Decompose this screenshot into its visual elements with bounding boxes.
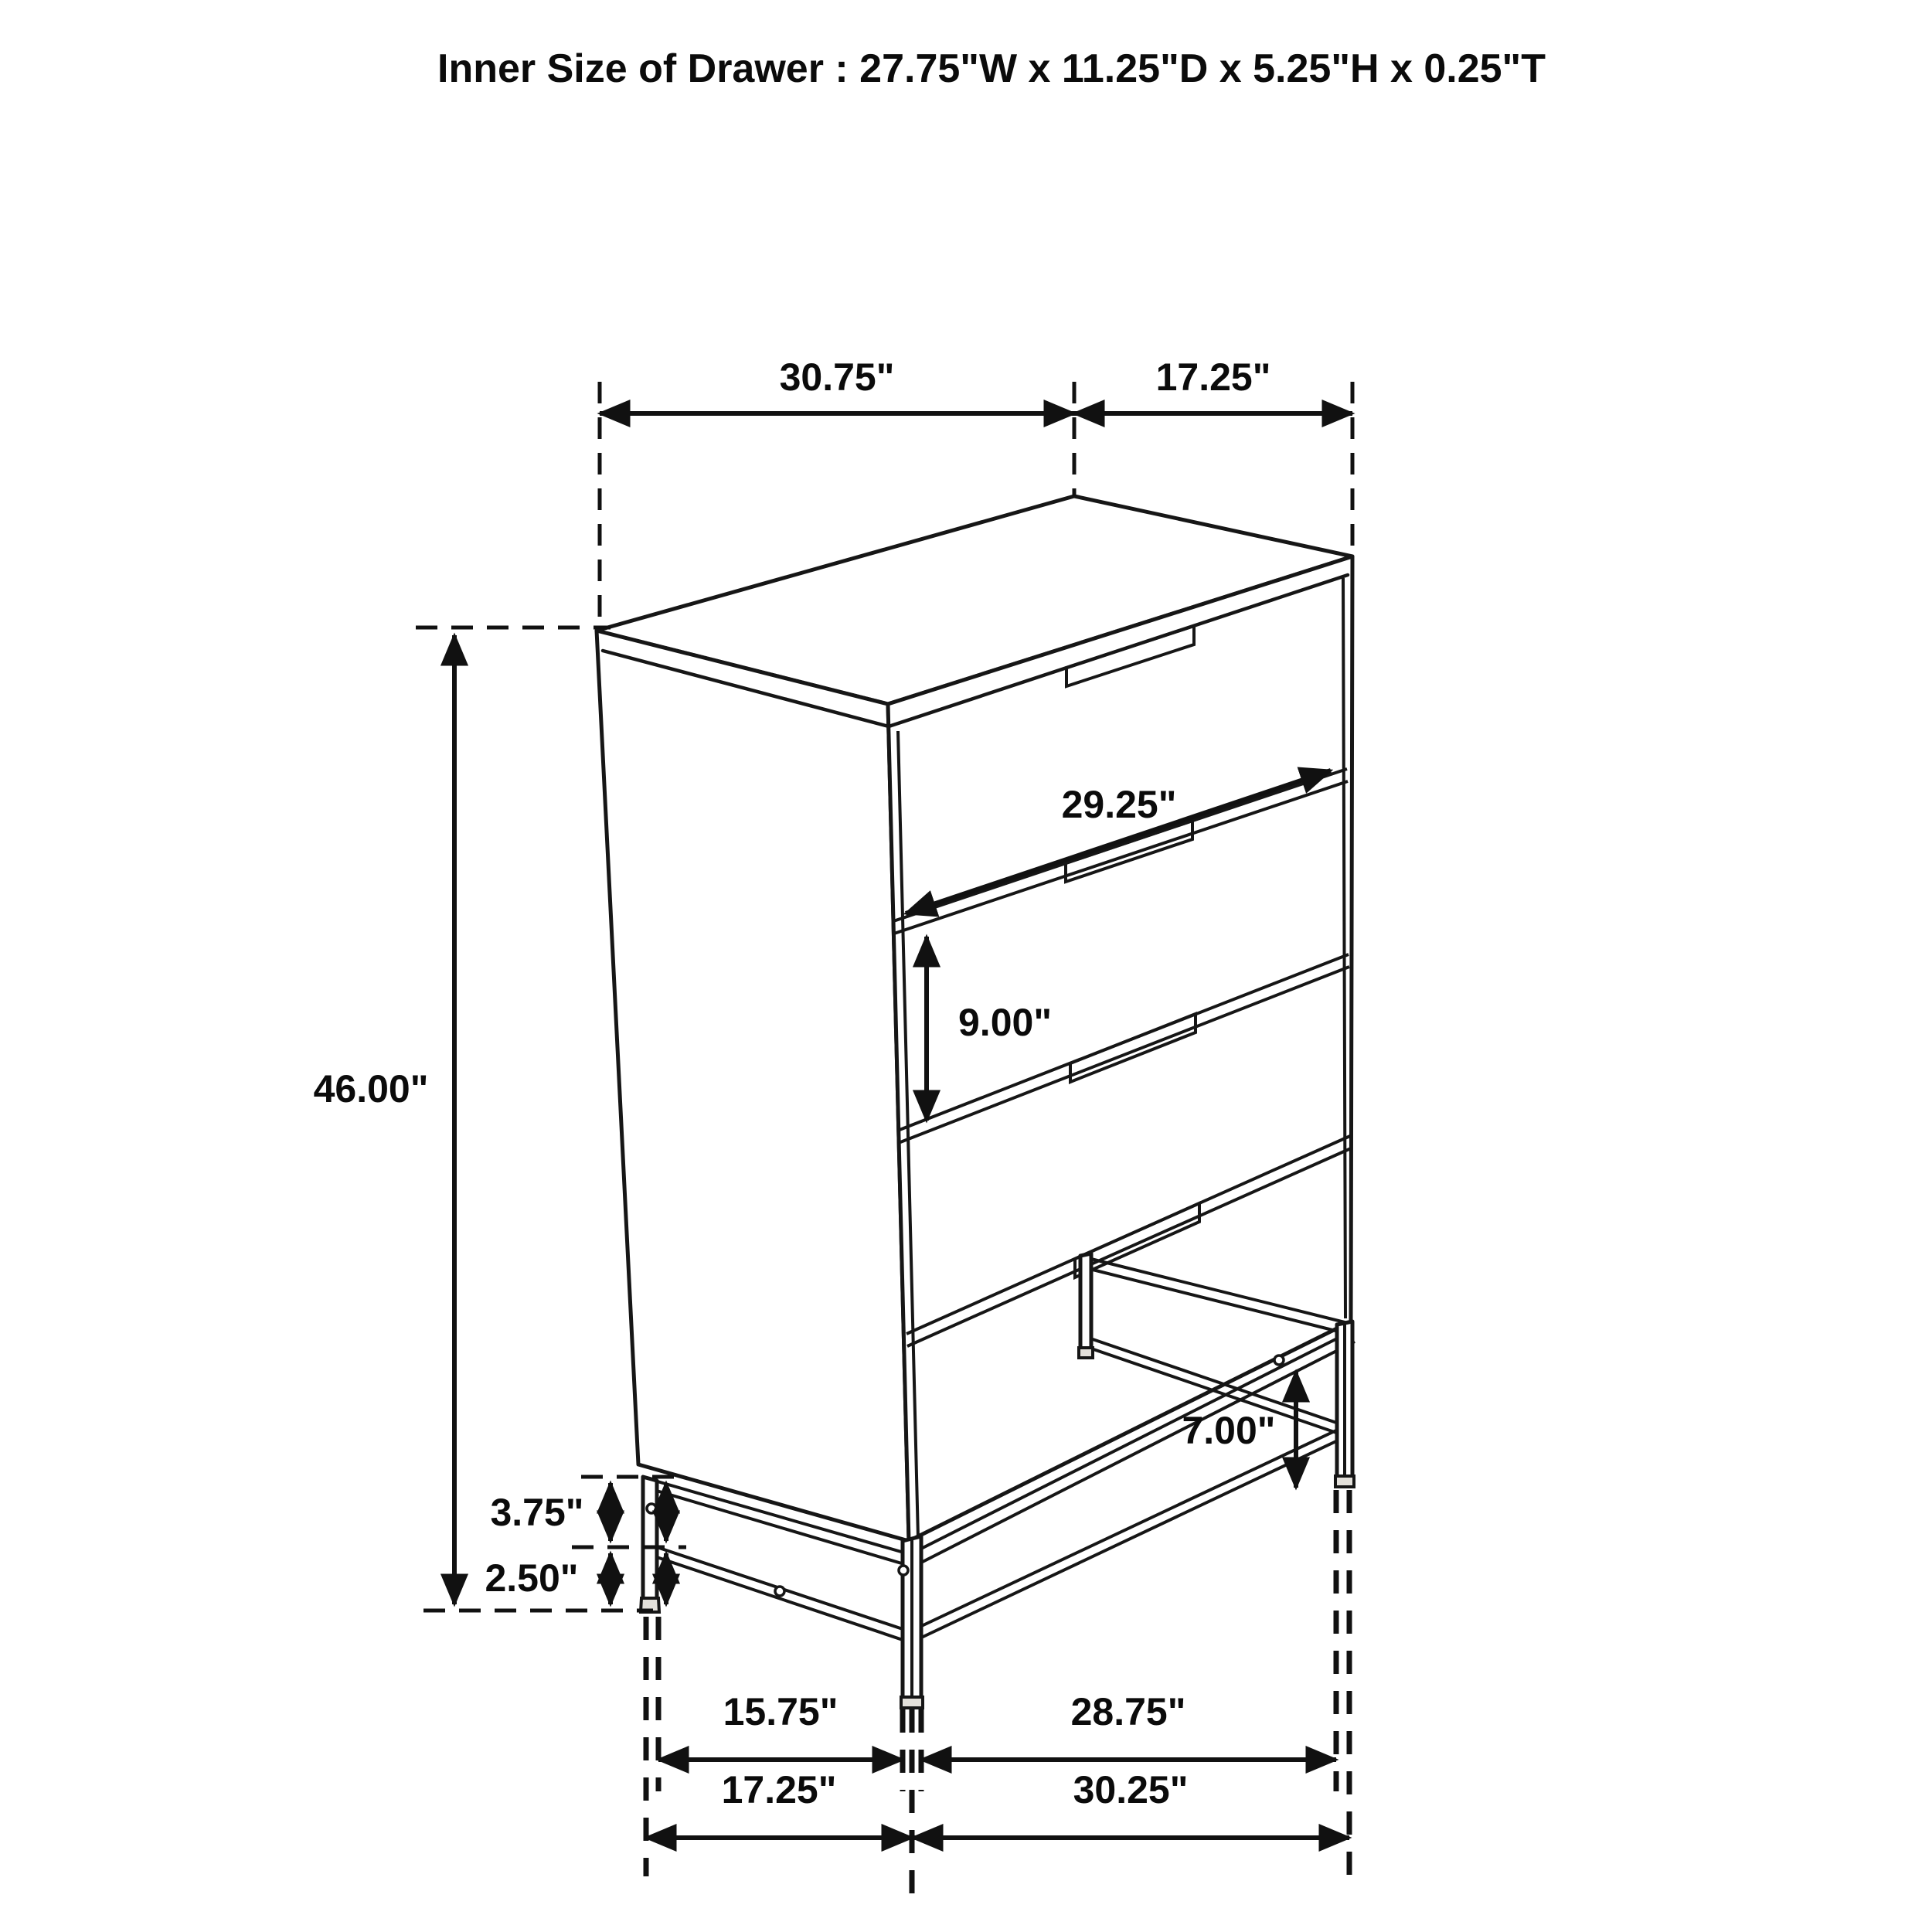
- dimension-diagram-svg: Inner Size of Drawer : 27.75"W x 11.25"D…: [0, 0, 1932, 1932]
- leg-back-right: [1080, 1253, 1091, 1349]
- leg-back-left: [643, 1477, 657, 1604]
- dim-base-upper-label: 3.75": [490, 1491, 583, 1534]
- dim-bottom-outer-right-label: 30.25": [1073, 1768, 1189, 1811]
- dim-base-lower-label: 2.50": [485, 1556, 578, 1600]
- screw-hole-3: [775, 1587, 784, 1596]
- dim-height-label: 46.00": [314, 1067, 429, 1111]
- dim-top-width-label: 30.75": [780, 355, 895, 399]
- diagram-page: Inner Size of Drawer : 27.75"W x 11.25"D…: [0, 0, 1932, 1932]
- dim-top-depth-label: 17.25": [1156, 355, 1271, 399]
- screw-hole-2: [899, 1566, 908, 1575]
- screw-hole-1: [647, 1504, 656, 1513]
- dim-leg-height-label: 7.00": [1182, 1409, 1275, 1452]
- base-gap-extension-lines: [572, 1477, 686, 1547]
- dim-bottom-outer-left-label: 17.25": [722, 1768, 837, 1811]
- cabinet-left-face: [597, 631, 909, 1541]
- dim-drawer-height-label: 9.00": [958, 1001, 1052, 1044]
- dim-drawer-width-label: 29.25": [1062, 783, 1177, 826]
- dim-bottom-inner-right-label: 28.75": [1071, 1690, 1186, 1733]
- dim-bottom-inner-left-label: 15.75": [723, 1690, 838, 1733]
- screw-hole-4: [1274, 1355, 1284, 1365]
- title-text: Inner Size of Drawer : 27.75"W x 11.25"D…: [437, 46, 1546, 91]
